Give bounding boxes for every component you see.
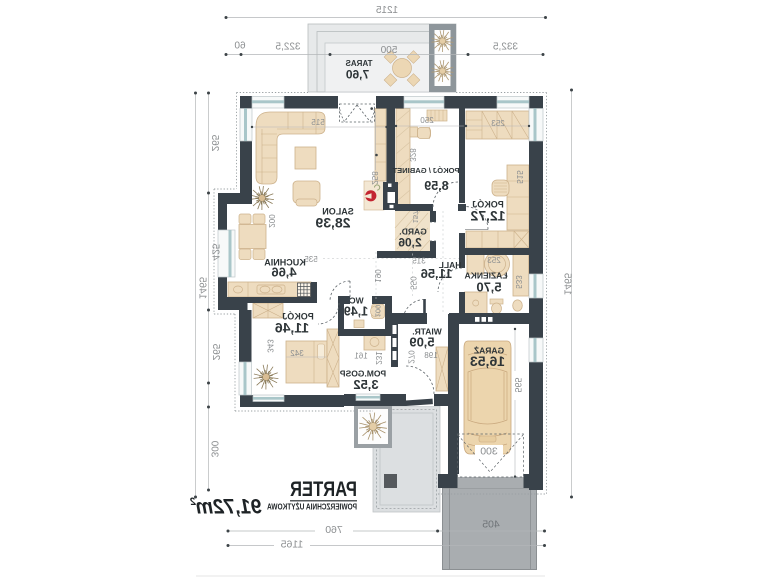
- svg-text:332,5: 332,5: [493, 42, 518, 53]
- svg-text:300: 300: [208, 440, 219, 457]
- svg-text:565: 565: [513, 377, 523, 392]
- svg-text:2,06: 2,06: [398, 236, 422, 250]
- svg-text:253: 253: [487, 256, 501, 265]
- svg-text:760: 760: [325, 524, 343, 536]
- svg-text:28,39: 28,39: [315, 215, 350, 231]
- svg-text:328: 328: [408, 148, 417, 162]
- svg-text:91,72m2: 91,72m2: [190, 496, 262, 519]
- svg-text:231: 231: [374, 351, 383, 365]
- svg-text:11,46: 11,46: [275, 320, 309, 336]
- svg-text:POWIERZCHNIA UŻYTKOWA: POWIERZCHNIA UŻYTKOWA: [267, 503, 357, 512]
- svg-text:5,70: 5,70: [476, 279, 501, 294]
- svg-text:12,72: 12,72: [470, 208, 505, 224]
- svg-text:265: 265: [210, 343, 221, 360]
- svg-text:4,66: 4,66: [271, 264, 296, 279]
- svg-text:161: 161: [354, 352, 368, 361]
- svg-text:343: 343: [265, 339, 274, 353]
- svg-text:5,09: 5,09: [409, 334, 434, 349]
- svg-text:258: 258: [370, 171, 379, 185]
- svg-text:1215: 1215: [375, 5, 398, 16]
- svg-text:533: 533: [514, 275, 523, 289]
- svg-text:POKÓJ / GABINET: POKÓJ / GABINET: [392, 166, 459, 175]
- svg-text:515: 515: [311, 118, 325, 127]
- svg-text:PARTER: PARTER: [290, 478, 357, 501]
- svg-text:315: 315: [412, 257, 426, 266]
- svg-text:157: 157: [411, 211, 420, 224]
- svg-text:190: 190: [373, 269, 382, 283]
- svg-text:8,59: 8,59: [424, 179, 448, 193]
- svg-text:11,56: 11,56: [421, 266, 453, 281]
- svg-text:7,60: 7,60: [345, 68, 369, 82]
- svg-text:200: 200: [267, 214, 276, 228]
- svg-text:60: 60: [234, 41, 246, 52]
- svg-text:265: 265: [209, 134, 220, 151]
- svg-text:1465: 1465: [196, 276, 207, 299]
- svg-text:535: 535: [304, 255, 318, 264]
- svg-text:270: 270: [406, 350, 415, 364]
- svg-text:253: 253: [491, 119, 505, 128]
- svg-text:1,49: 1,49: [344, 304, 368, 318]
- svg-text:1165: 1165: [281, 538, 304, 550]
- svg-text:425: 425: [209, 243, 220, 260]
- svg-text:515: 515: [515, 170, 524, 184]
- svg-text:300: 300: [480, 445, 498, 457]
- svg-text:250: 250: [420, 116, 434, 125]
- svg-text:100: 100: [374, 305, 383, 318]
- svg-text:16,53: 16,53: [470, 353, 505, 369]
- svg-text:1465: 1465: [561, 272, 572, 295]
- svg-text:500: 500: [380, 45, 397, 56]
- svg-text:342: 342: [290, 349, 304, 358]
- svg-text:322,5: 322,5: [275, 42, 300, 53]
- svg-text:405: 405: [482, 518, 500, 530]
- svg-text:198: 198: [424, 351, 438, 360]
- svg-text:3,52: 3,52: [353, 377, 378, 392]
- svg-text:550: 550: [408, 276, 417, 290]
